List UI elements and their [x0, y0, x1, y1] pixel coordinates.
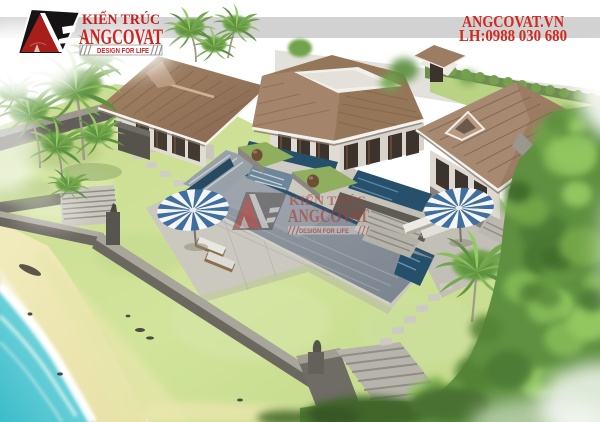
- svg-text:DESIGN FOR LIFE: DESIGN FOR LIFE: [97, 48, 149, 55]
- svg-text:ANGCOVAT: ANGCOVAT: [288, 206, 369, 227]
- svg-text:DESIGN FOR LIFE: DESIGN FOR LIFE: [299, 228, 350, 235]
- svg-text:LH:0988 030 680: LH:0988 030 680: [459, 26, 567, 45]
